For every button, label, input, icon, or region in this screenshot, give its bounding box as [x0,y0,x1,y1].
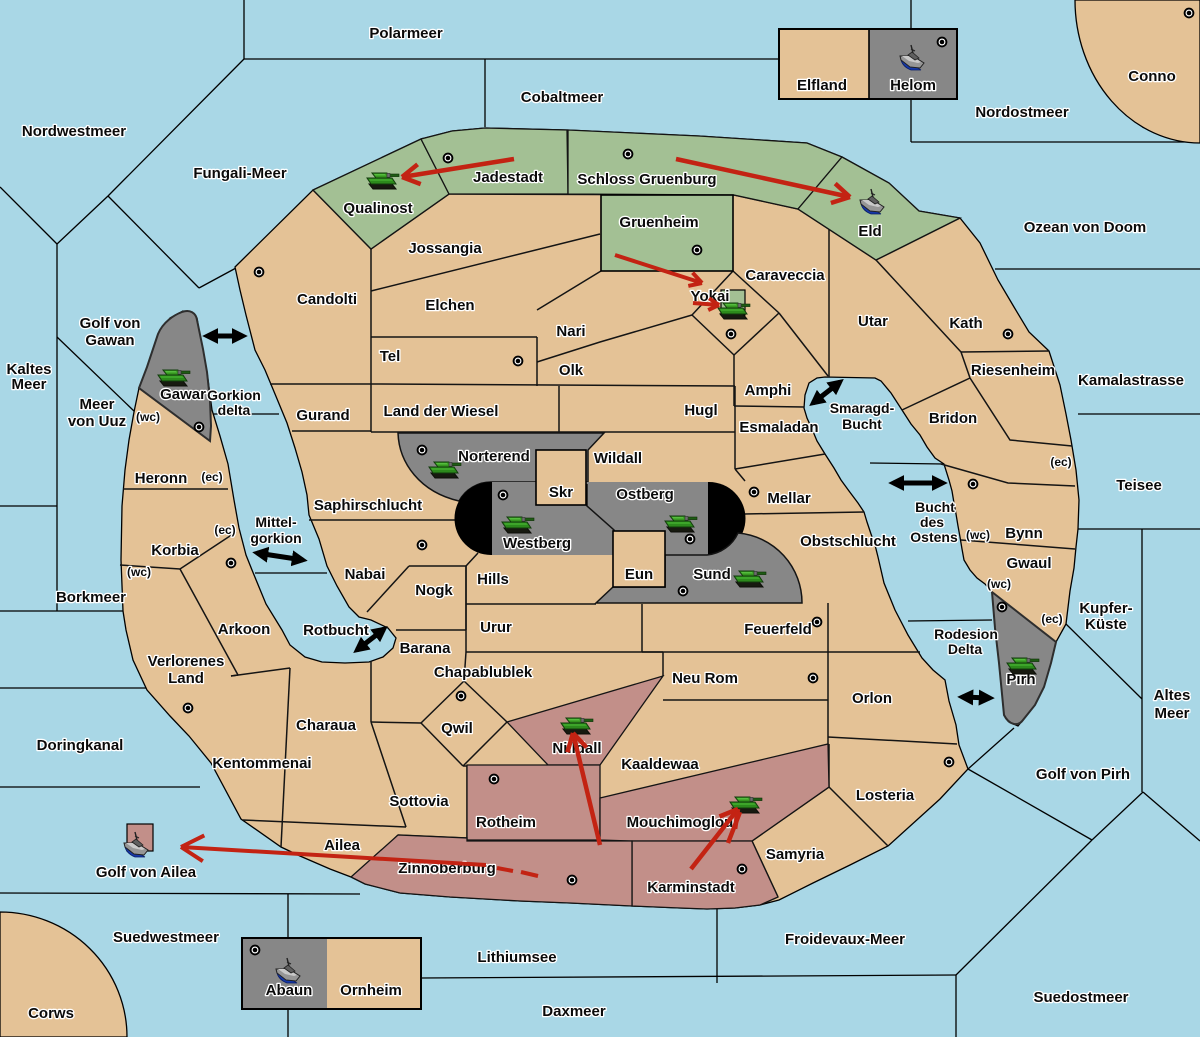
svg-text:Jadestadt: Jadestadt [473,169,543,186]
svg-text:Chapablublek: Chapablublek [434,664,533,681]
svg-text:Sund: Sund [693,566,731,583]
svg-text:Riesenheim: Riesenheim [971,362,1055,379]
svg-text:(ec): (ec) [214,523,235,537]
svg-text:Sottovia: Sottovia [389,793,449,810]
svg-text:Kamalastrasse: Kamalastrasse [1078,372,1184,389]
svg-text:Tel: Tel [380,348,401,365]
svg-text:Ostberg: Ostberg [616,486,674,503]
svg-text:Suedostmeer: Suedostmeer [1033,989,1128,1006]
svg-text:Olk: Olk [559,362,584,379]
svg-text:Qwil: Qwil [441,720,473,737]
svg-text:Ozean von Doom: Ozean von Doom [1024,219,1147,236]
svg-text:Delta: Delta [948,641,982,657]
svg-text:Mouchimoglou: Mouchimoglou [627,814,734,831]
svg-text:Gawar: Gawar [160,386,206,403]
svg-text:Froidevaux-Meer: Froidevaux-Meer [785,931,905,948]
svg-text:(ec): (ec) [201,470,222,484]
svg-text:Norterend: Norterend [458,448,530,465]
svg-text:Teisee: Teisee [1116,477,1162,494]
svg-text:Heronn: Heronn [135,470,188,487]
svg-text:(wc): (wc) [987,577,1011,591]
svg-text:Meer: Meer [11,376,46,393]
svg-text:Amphi: Amphi [745,382,792,399]
svg-text:Nari: Nari [556,323,585,340]
svg-text:Mellar: Mellar [767,490,811,507]
svg-text:Lithiumsee: Lithiumsee [477,949,556,966]
svg-text:(ec): (ec) [1041,612,1062,626]
svg-text:Skr: Skr [549,484,573,501]
svg-text:Eld: Eld [858,223,881,240]
svg-text:(wc): (wc) [966,528,990,542]
svg-text:Corws: Corws [28,1005,74,1022]
svg-text:Obstschlucht: Obstschlucht [800,533,896,550]
svg-text:Karminstadt: Karminstadt [647,879,735,896]
svg-text:Nordwestmeer: Nordwestmeer [22,123,126,140]
svg-text:Gawan: Gawan [85,332,134,349]
svg-text:Smaragd-: Smaragd- [830,400,895,416]
svg-text:Suedwestmeer: Suedwestmeer [113,929,219,946]
svg-text:Meer: Meer [79,396,114,413]
svg-text:Doringkanal: Doringkanal [37,737,124,754]
svg-text:Küste: Küste [1085,616,1127,633]
svg-text:Rotbucht: Rotbucht [303,622,369,639]
svg-text:(ec): (ec) [1050,455,1071,469]
svg-text:Esmaladan: Esmaladan [739,419,818,436]
svg-text:Gurand: Gurand [296,407,349,424]
svg-text:Losteria: Losteria [856,787,915,804]
svg-text:Golf von Pirh: Golf von Pirh [1036,766,1130,783]
svg-text:Golf von: Golf von [80,315,141,332]
svg-text:Bucht: Bucht [842,416,882,432]
svg-text:Bynn: Bynn [1005,525,1043,542]
svg-text:Hills: Hills [477,571,509,588]
svg-text:Kaaldewaa: Kaaldewaa [621,756,699,773]
svg-text:Altes: Altes [1154,687,1191,704]
svg-text:Wildall: Wildall [594,450,642,467]
svg-text:Qualinost: Qualinost [343,200,412,217]
svg-text:Schloss Gruenburg: Schloss Gruenburg [577,171,716,188]
svg-text:Cobaltmeer: Cobaltmeer [521,89,604,106]
svg-text:Nordostmeer: Nordostmeer [975,104,1069,121]
svg-text:Ornheim: Ornheim [340,982,402,999]
svg-text:Kupfer-: Kupfer- [1079,600,1132,617]
svg-text:Gorkion: Gorkion [207,387,261,403]
svg-text:Ailea: Ailea [324,837,361,854]
svg-text:Barana: Barana [400,640,452,657]
svg-text:des: des [920,514,944,530]
svg-text:Golf von Ailea: Golf von Ailea [96,864,197,881]
svg-text:Bridon: Bridon [929,410,977,427]
svg-text:Ostens: Ostens [910,529,958,545]
svg-text:Jossangia: Jossangia [408,240,482,257]
svg-text:Helom: Helom [890,77,936,94]
svg-text:Orlon: Orlon [852,690,892,707]
svg-text:Verlorenes: Verlorenes [148,653,225,670]
svg-text:Caraveccia: Caraveccia [745,267,825,284]
svg-text:Bucht: Bucht [915,499,955,515]
svg-text:Candolti: Candolti [297,291,357,308]
svg-text:Abaun: Abaun [266,982,313,999]
svg-text:Mittel-: Mittel- [255,514,297,530]
svg-text:Polarmeer: Polarmeer [369,25,443,42]
svg-text:Land: Land [168,670,204,687]
svg-text:Utar: Utar [858,313,888,330]
svg-text:gorkion: gorkion [250,530,301,546]
svg-text:Conno: Conno [1128,68,1175,85]
svg-text:Elfland: Elfland [797,77,847,94]
svg-text:Charaua: Charaua [296,717,357,734]
svg-text:Westberg: Westberg [503,535,571,552]
svg-text:Fungali-Meer: Fungali-Meer [193,165,287,182]
svg-text:Saphirschlucht: Saphirschlucht [314,497,422,514]
svg-text:Samyria: Samyria [766,846,825,863]
svg-text:Korbia: Korbia [151,542,199,559]
svg-text:(wc): (wc) [136,410,160,424]
svg-text:Gruenheim: Gruenheim [619,214,698,231]
svg-text:Land der Wiesel: Land der Wiesel [384,403,499,420]
svg-text:delta: delta [218,402,251,418]
svg-text:(wc): (wc) [127,565,151,579]
svg-text:Rodesion: Rodesion [934,626,998,642]
svg-text:Nabai: Nabai [345,566,386,583]
svg-text:Eun: Eun [625,566,653,583]
svg-text:Hugl: Hugl [684,402,717,419]
svg-text:Borkmeer: Borkmeer [56,589,126,606]
svg-text:Meer: Meer [1154,705,1189,722]
svg-text:Nogk: Nogk [415,582,453,599]
svg-text:Kentommenai: Kentommenai [212,755,311,772]
svg-text:Elchen: Elchen [425,297,474,314]
svg-text:Kath: Kath [949,315,982,332]
svg-text:Daxmeer: Daxmeer [542,1003,606,1020]
svg-text:Neu Rom: Neu Rom [672,670,738,687]
svg-text:Gwaul: Gwaul [1006,555,1051,572]
svg-text:von Uuz: von Uuz [68,413,126,430]
svg-text:Urur: Urur [480,619,512,636]
svg-text:Rotheim: Rotheim [476,814,536,831]
svg-text:Arkoon: Arkoon [218,621,271,638]
svg-text:Feuerfeld: Feuerfeld [744,621,812,638]
